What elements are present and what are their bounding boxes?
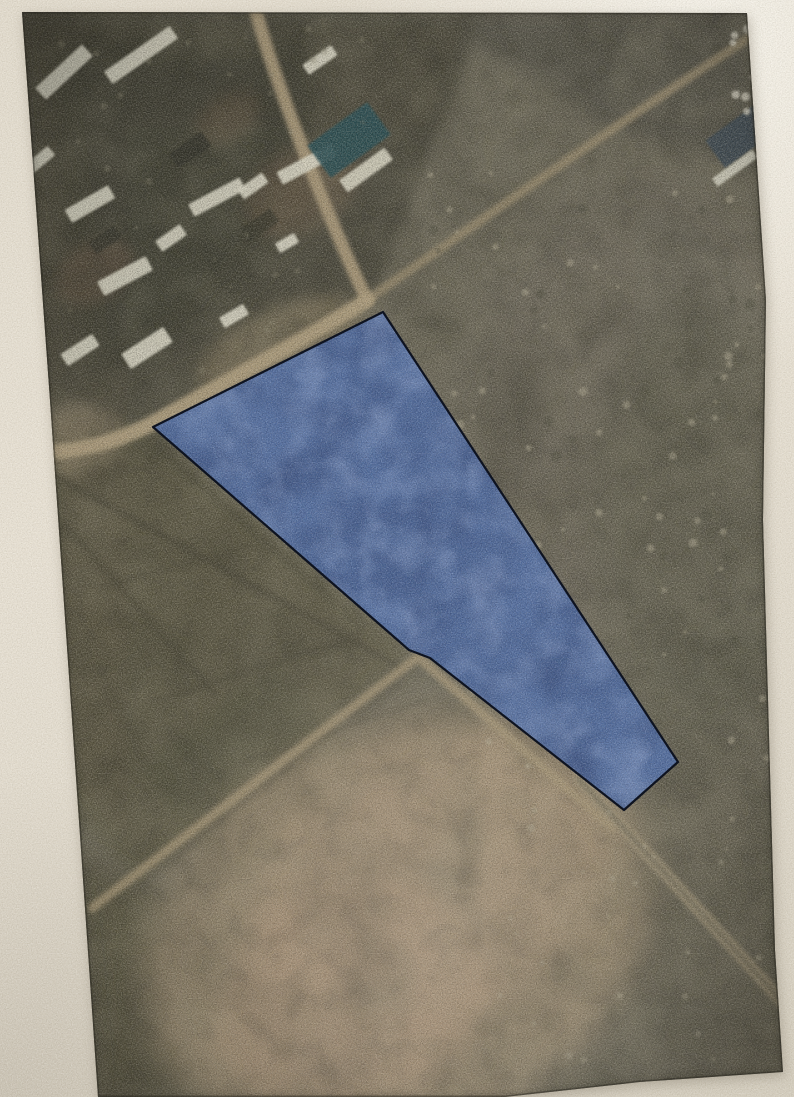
satellite-photo — [0, 0, 794, 1097]
scene-svg — [0, 0, 794, 1097]
photographed-satellite-map — [0, 0, 794, 1097]
